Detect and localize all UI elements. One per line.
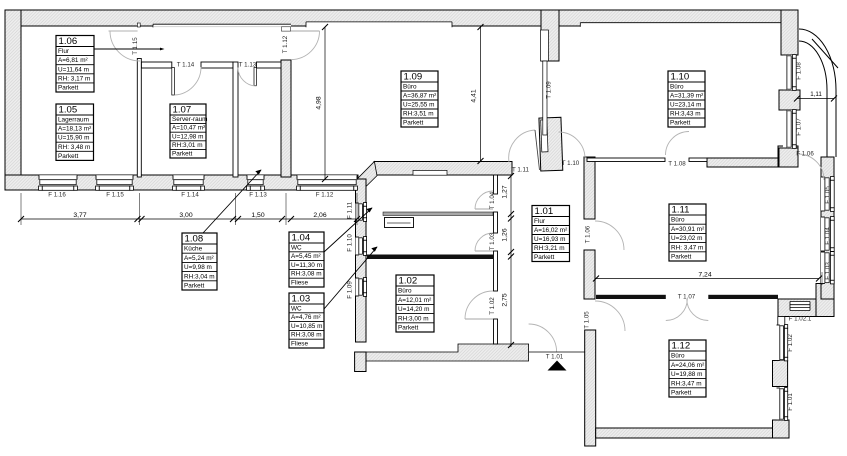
svg-text:WC: WC <box>291 244 302 251</box>
svg-text:2,75: 2,75 <box>502 293 509 306</box>
svg-text:F 1.12: F 1.12 <box>316 192 334 199</box>
svg-text:1.10: 1.10 <box>671 71 690 82</box>
svg-text:F 1.08: F 1.08 <box>796 62 803 80</box>
svg-text:1,11: 1,11 <box>810 91 822 98</box>
svg-text:1.12: 1.12 <box>672 340 691 351</box>
svg-text:T 1.01: T 1.01 <box>546 354 564 361</box>
svg-text:RH:3,43 m: RH:3,43 m <box>670 111 701 118</box>
svg-text:T 1.15: T 1.15 <box>132 37 139 55</box>
svg-text:A=31,39 m²: A=31,39 m² <box>670 93 703 100</box>
svg-text:U=10,85 m: U=10,85 m <box>291 323 322 330</box>
svg-text:T 1.10: T 1.10 <box>562 160 580 167</box>
svg-text:1.08: 1.08 <box>185 233 204 244</box>
svg-text:A=36,87 m²: A=36,87 m² <box>403 93 436 100</box>
svg-text:RH: 3,17 m: RH: 3,17 m <box>58 75 90 82</box>
svg-text:RH:3,08 m: RH:3,08 m <box>291 271 322 278</box>
svg-text:Büro: Büro <box>671 353 685 360</box>
svg-text:F 1.16: F 1.16 <box>48 192 66 199</box>
svg-text:RH:3,01 m: RH:3,01 m <box>172 142 203 149</box>
svg-text:T 1.03: T 1.03 <box>489 232 496 250</box>
svg-text:RH:3,08 m: RH:3,08 m <box>291 332 322 339</box>
svg-text:F 1.11: F 1.11 <box>347 201 354 219</box>
svg-text:T 1.09: T 1.09 <box>546 81 553 99</box>
svg-text:U=14,20 m: U=14,20 m <box>398 306 429 313</box>
svg-text:F 1.13: F 1.13 <box>249 192 267 199</box>
svg-text:1.09: 1.09 <box>404 71 423 82</box>
svg-text:A=5,24 m²: A=5,24 m² <box>184 255 214 262</box>
svg-text:U=12,98 m: U=12,98 m <box>172 133 203 140</box>
svg-text:RH:3,21 m: RH:3,21 m <box>534 245 565 252</box>
svg-text:4,41: 4,41 <box>471 89 478 102</box>
svg-text:1.05: 1.05 <box>59 104 78 115</box>
svg-text:Küche: Küche <box>184 246 203 253</box>
svg-text:F 1.15: F 1.15 <box>106 192 124 199</box>
svg-text:Parkett: Parkett <box>398 325 418 332</box>
svg-text:WC: WC <box>291 305 302 312</box>
svg-text:1.11: 1.11 <box>672 204 690 215</box>
svg-text:RH: 3,47 m: RH: 3,47 m <box>671 244 703 251</box>
svg-text:Fliese: Fliese <box>291 280 308 287</box>
svg-text:U=15,90 m: U=15,90 m <box>58 135 89 142</box>
svg-text:U=23,02 m: U=23,02 m <box>671 235 702 242</box>
svg-text:A=5,45 m²: A=5,45 m² <box>291 253 321 260</box>
svg-text:F 1.04: F 1.04 <box>825 227 832 245</box>
svg-text:1,26: 1,26 <box>502 228 509 241</box>
svg-text:Server-raum: Server-raum <box>172 116 208 123</box>
svg-text:F 1.10: F 1.10 <box>347 234 354 252</box>
svg-text:F 1.02: F 1.02 <box>787 334 794 352</box>
svg-text:Parkett: Parkett <box>172 151 192 158</box>
svg-text:1.04: 1.04 <box>292 232 311 243</box>
svg-text:Parkett: Parkett <box>671 254 691 261</box>
svg-text:A=16,02 m²: A=16,02 m² <box>534 227 567 234</box>
svg-text:T 1.04: T 1.04 <box>489 191 496 209</box>
svg-text:3,77: 3,77 <box>73 212 86 219</box>
svg-text:Parkett: Parkett <box>58 153 78 160</box>
svg-text:U=9,98 m: U=9,98 m <box>184 264 212 271</box>
svg-text:U=19,88 m: U=19,88 m <box>671 371 702 378</box>
svg-text:Fliese: Fliese <box>291 341 308 348</box>
svg-text:RH: 3,48 m: RH: 3,48 m <box>58 144 90 151</box>
svg-text:4,98: 4,98 <box>316 96 323 109</box>
svg-text:1,50: 1,50 <box>251 212 264 219</box>
svg-text:Flur: Flur <box>534 218 546 225</box>
svg-text:Parkett: Parkett <box>534 254 554 261</box>
svg-text:Parkett: Parkett <box>58 85 78 92</box>
svg-text:T 1.08: T 1.08 <box>668 161 686 168</box>
svg-text:A=18,13 m²: A=18,13 m² <box>58 126 91 133</box>
svg-text:RH:3,47 m: RH:3,47 m <box>671 380 702 387</box>
svg-text:T 1.06: T 1.06 <box>585 225 592 243</box>
svg-text:Flur: Flur <box>58 48 70 55</box>
svg-text:F 1.06: F 1.06 <box>796 151 814 158</box>
svg-text:A=30,91 m²: A=30,91 m² <box>671 226 704 233</box>
svg-text:F 1.05: F 1.05 <box>825 186 832 204</box>
svg-text:U=16,93 m: U=16,93 m <box>534 236 565 243</box>
svg-text:Büro: Büro <box>398 288 412 295</box>
svg-text:T 1.13: T 1.13 <box>239 62 257 69</box>
svg-text:F 1.01: F 1.01 <box>787 393 794 411</box>
svg-text:Büro: Büro <box>671 217 685 224</box>
svg-text:A=12,01 m²: A=12,01 m² <box>398 297 431 304</box>
svg-text:Büro: Büro <box>670 84 684 91</box>
svg-text:Parkett: Parkett <box>403 120 423 127</box>
svg-text:U=23,14 m: U=23,14 m <box>670 102 701 109</box>
svg-text:T 1.05: T 1.05 <box>584 311 591 329</box>
svg-text:RH:3,00 m: RH:3,00 m <box>398 315 429 322</box>
svg-text:A=4,76 m²: A=4,76 m² <box>291 314 321 321</box>
svg-text:1.03: 1.03 <box>292 293 311 304</box>
svg-text:Parkett: Parkett <box>671 390 691 397</box>
svg-text:A=10,47 m²: A=10,47 m² <box>172 125 205 132</box>
svg-text:T 1.11: T 1.11 <box>512 167 530 174</box>
svg-text:U=25,55 m: U=25,55 m <box>403 102 434 109</box>
svg-text:1.06: 1.06 <box>59 36 78 47</box>
svg-text:2,06: 2,06 <box>313 212 326 219</box>
svg-text:U=11,30 m: U=11,30 m <box>291 262 322 269</box>
svg-text:Lagerraum: Lagerraum <box>58 117 89 124</box>
svg-text:RH:3,04 m: RH:3,04 m <box>184 273 215 280</box>
svg-text:T 1.14: T 1.14 <box>177 62 195 69</box>
svg-text:1.01: 1.01 <box>535 206 554 217</box>
svg-text:F 1.02.1: F 1.02.1 <box>789 316 812 323</box>
svg-text:F 1.07: F 1.07 <box>796 118 803 136</box>
svg-text:7,24: 7,24 <box>698 272 711 279</box>
svg-text:1.02: 1.02 <box>399 275 418 286</box>
svg-text:T 1.02: T 1.02 <box>489 297 496 315</box>
svg-text:Büro: Büro <box>403 84 417 91</box>
svg-text:3,00: 3,00 <box>179 212 192 219</box>
svg-text:F 1.03: F 1.03 <box>825 262 832 280</box>
svg-text:1,27: 1,27 <box>502 185 509 198</box>
svg-text:F 1.09: F 1.09 <box>347 281 354 299</box>
svg-text:U=11,64 m: U=11,64 m <box>58 66 89 73</box>
svg-text:T 1.12: T 1.12 <box>282 35 289 53</box>
svg-text:1.07: 1.07 <box>173 104 192 115</box>
svg-text:A=6,81 m²: A=6,81 m² <box>58 57 88 64</box>
svg-text:F 1.14: F 1.14 <box>181 192 199 199</box>
svg-text:A=24,06 m²: A=24,06 m² <box>671 362 704 369</box>
svg-text:Parkett: Parkett <box>184 283 204 290</box>
svg-text:RH:3,51 m: RH:3,51 m <box>403 111 434 118</box>
svg-text:Parkett: Parkett <box>670 120 690 127</box>
svg-text:T 1.07: T 1.07 <box>678 294 696 301</box>
